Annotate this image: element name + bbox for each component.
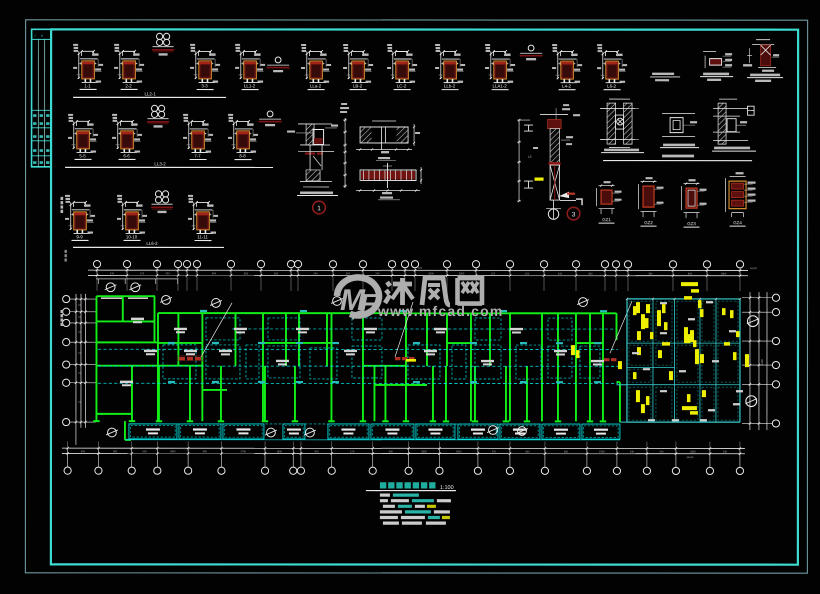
svg-text:5-5: 5-5 <box>79 153 86 158</box>
svg-text:6-6: 6-6 <box>123 153 130 158</box>
svg-text:LLa-2: LLa-2 <box>310 83 322 88</box>
svg-text:300: 300 <box>274 272 279 275</box>
svg-text:8-8: 8-8 <box>239 153 246 158</box>
svg-text:900: 900 <box>688 273 693 276</box>
svg-text:LL2-1: LL2-1 <box>144 91 156 96</box>
svg-text:2-2: 2-2 <box>125 83 132 88</box>
svg-text:240: 240 <box>558 272 563 275</box>
svg-text:360: 360 <box>203 450 208 453</box>
svg-text:900: 900 <box>81 450 86 453</box>
svg-text:F: F <box>360 288 377 318</box>
svg-text:300: 300 <box>525 450 530 453</box>
svg-text:240: 240 <box>659 451 664 454</box>
svg-text:120: 120 <box>418 267 423 270</box>
svg-text:LC-2: LC-2 <box>397 83 407 88</box>
svg-text:1500: 1500 <box>456 450 462 453</box>
svg-text:3-3: 3-3 <box>201 83 208 88</box>
svg-text:LLA1-2: LLA1-2 <box>493 84 508 89</box>
svg-text:1800: 1800 <box>721 273 727 276</box>
svg-text:11-11: 11-11 <box>197 234 208 239</box>
svg-text:3: 3 <box>572 211 576 218</box>
svg-text:120: 120 <box>350 450 355 453</box>
svg-text:44x30: 44x30 <box>687 456 694 459</box>
svg-text:420: 420 <box>314 450 319 453</box>
svg-text:LL6-2: LL6-2 <box>146 241 158 246</box>
svg-text:9-9: 9-9 <box>76 234 83 239</box>
svg-text:120: 120 <box>525 272 530 275</box>
svg-text:3300: 3300 <box>170 450 176 453</box>
svg-text:1800: 1800 <box>428 272 434 275</box>
svg-text:420: 420 <box>492 450 497 453</box>
svg-text:1-1: 1-1 <box>84 83 91 88</box>
svg-text:GZ4: GZ4 <box>733 220 742 225</box>
svg-text:240: 240 <box>313 272 318 275</box>
svg-text:360: 360 <box>648 273 653 276</box>
svg-text:360: 360 <box>564 450 569 453</box>
svg-text:3300: 3300 <box>421 450 427 453</box>
svg-text:L4-2: L4-2 <box>562 84 571 89</box>
svg-text:1400: 1400 <box>760 359 764 365</box>
svg-text:LL1-2: LL1-2 <box>244 83 256 88</box>
svg-text:240: 240 <box>630 450 635 453</box>
svg-text:LLb-2: LLb-2 <box>444 84 456 89</box>
svg-text:360: 360 <box>212 272 217 275</box>
svg-text:GZ1: GZ1 <box>602 217 611 222</box>
svg-text:120: 120 <box>491 272 496 275</box>
svg-text:300: 300 <box>389 450 394 453</box>
svg-text:2700: 2700 <box>240 450 246 453</box>
svg-text:GZ2: GZ2 <box>644 220 653 225</box>
svg-text:1800: 1800 <box>276 450 282 453</box>
svg-text:LB-2: LB-2 <box>353 83 363 88</box>
svg-text:900: 900 <box>346 272 351 275</box>
svg-text:GZ3: GZ3 <box>687 221 696 226</box>
svg-text:240: 240 <box>110 272 115 275</box>
svg-text:7-7: 7-7 <box>194 153 201 158</box>
svg-text:www.mfcad.com: www.mfcad.com <box>377 303 504 319</box>
svg-text:4x240: 4x240 <box>750 267 757 270</box>
svg-text:1: 1 <box>317 205 321 212</box>
svg-text:LL3-2: LL3-2 <box>154 161 166 166</box>
svg-text:3300: 3300 <box>690 451 696 454</box>
svg-text:1F: 1F <box>528 155 532 159</box>
svg-text:3300: 3300 <box>459 272 465 275</box>
svg-text:10-10: 10-10 <box>126 234 138 239</box>
svg-text:120: 120 <box>140 272 145 275</box>
svg-text:360: 360 <box>113 450 118 453</box>
svg-text:360: 360 <box>588 272 593 275</box>
svg-text:900: 900 <box>142 450 147 453</box>
svg-text:L6-2: L6-2 <box>607 84 616 89</box>
svg-text:240: 240 <box>723 451 728 454</box>
svg-text:240: 240 <box>375 272 380 275</box>
svg-text:360: 360 <box>244 272 249 275</box>
svg-text:1500: 1500 <box>599 450 605 453</box>
svg-text:420: 420 <box>165 272 170 275</box>
